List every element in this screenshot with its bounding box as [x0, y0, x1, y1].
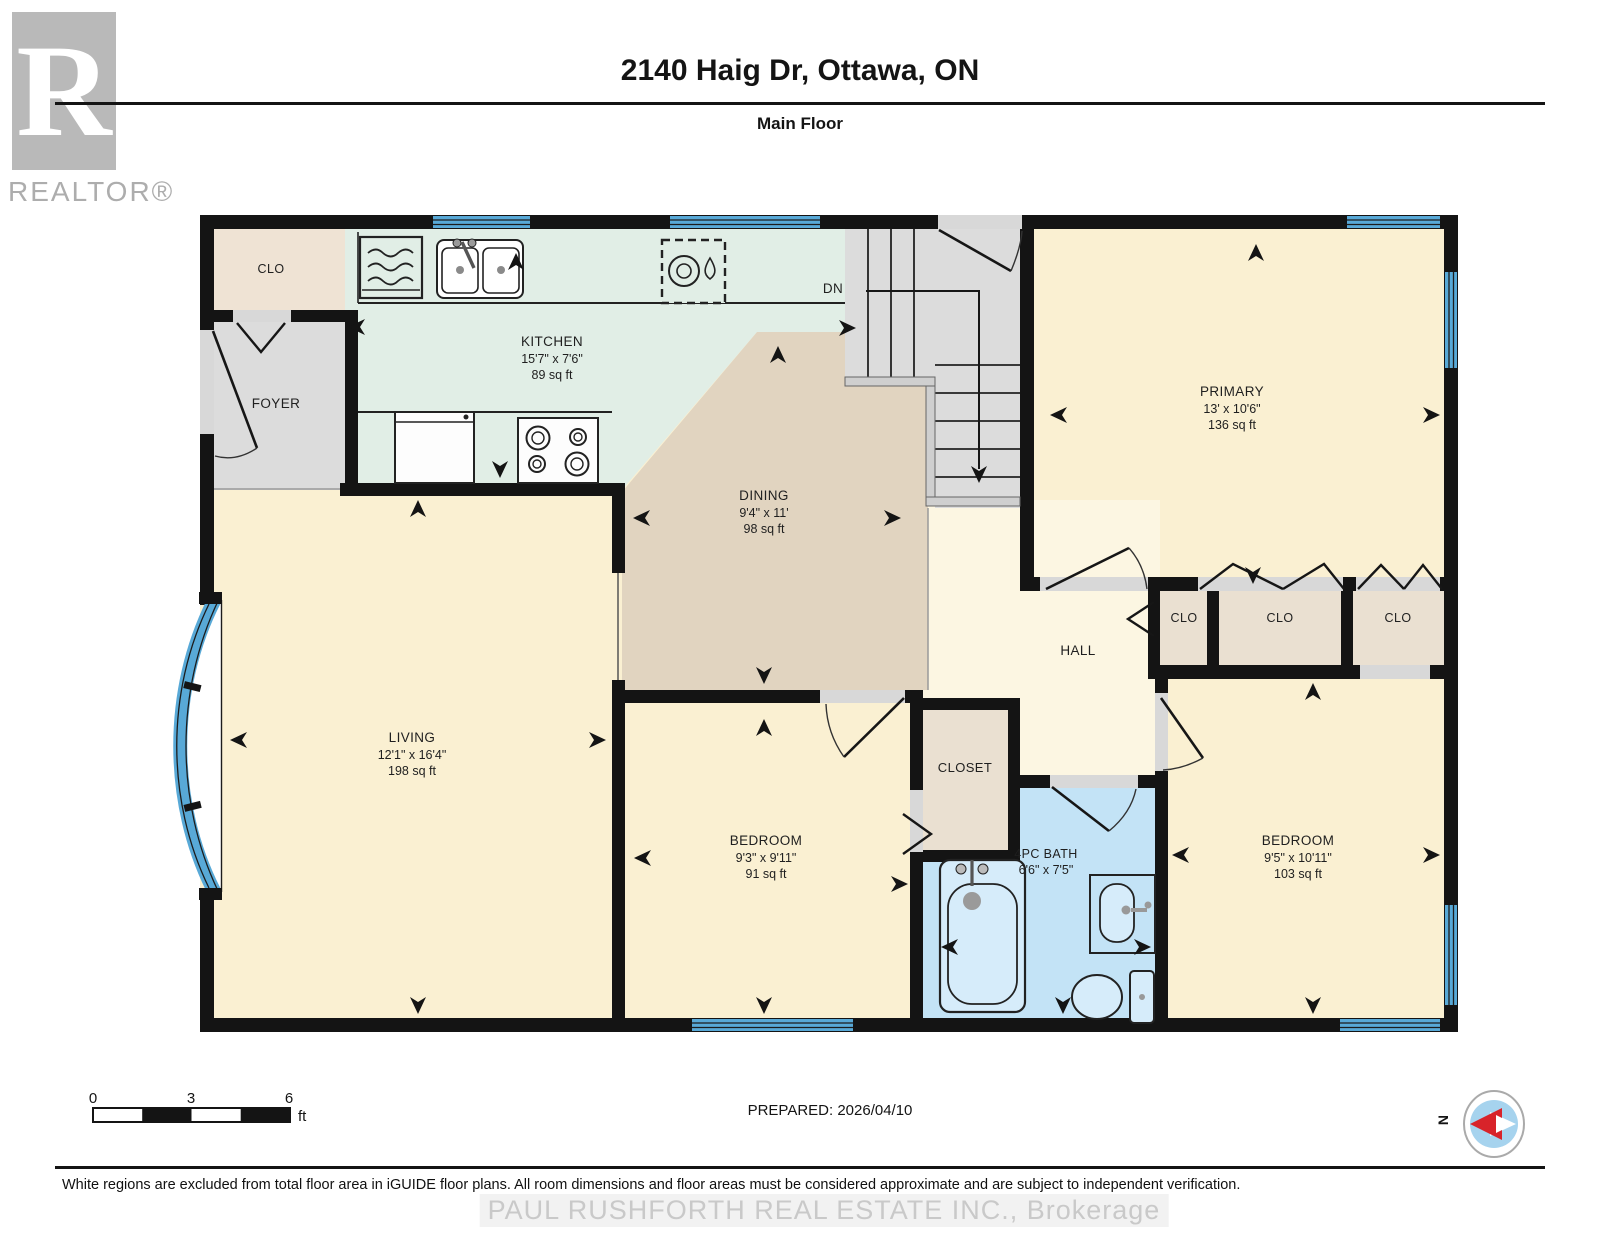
room-label-clo-1: CLO: [1171, 611, 1198, 625]
realtor-logo-icon: R: [12, 12, 116, 170]
room-label-clo-2: CLO: [1267, 611, 1294, 625]
kitchen-fixtures: [358, 232, 845, 483]
bathroom-fixtures: [940, 860, 1155, 1023]
compass-icon: [1464, 1091, 1524, 1157]
dimension-arrows: [230, 244, 1440, 1014]
scale-tick-3: 3: [187, 1090, 195, 1107]
room-label-hall: HALL: [1060, 643, 1095, 658]
realtor-logo-letter: R: [16, 17, 111, 164]
room-label-clo-entry: CLO: [258, 262, 285, 276]
brokerage-watermark: PAUL RUSHFORTH REAL ESTATE INC., Brokera…: [480, 1194, 1169, 1227]
room-label-dining: DINING 9'4" x 11' 98 sq ft: [739, 487, 789, 537]
room-label-kitchen: KITCHEN 15'7" x 7'6" 89 sq ft: [521, 333, 583, 383]
room-label-closet: CLOSET: [938, 760, 992, 775]
title-divider: [55, 102, 1545, 105]
open-passage-lines: [214, 489, 928, 690]
bathroom-sink-icon: [1090, 875, 1155, 953]
room-label-foyer: FOYER: [252, 396, 301, 411]
prepared-date: PREPARED: 2026/04/10: [748, 1102, 913, 1119]
scale-tick-0: 0: [89, 1090, 97, 1107]
stove-icon: [518, 418, 598, 483]
room-label-bath: 4PC BATH 6'6" x 7'5": [1014, 846, 1077, 879]
scale-bar: [93, 1108, 290, 1122]
stairs-dn-label: DN: [823, 281, 843, 296]
doors: [213, 230, 1203, 831]
microwave-icon: [360, 237, 422, 298]
fridge-icon: [395, 412, 474, 483]
dishwasher-icon: [662, 240, 725, 303]
floor-plan-page: R REALTOR® 2140 Haig Dr, Ottawa, ON Main…: [0, 0, 1600, 1243]
toilet-icon: [1072, 971, 1154, 1023]
kitchen-sink-icon: [437, 239, 523, 298]
stairs-down-arrow-icon: [971, 466, 987, 483]
bay-window: [177, 592, 222, 900]
realtor-logo-text: REALTOR®: [8, 176, 174, 208]
stairs: [845, 229, 1020, 506]
scale-tick-6: 6: [285, 1090, 293, 1107]
room-label-clo-3: CLO: [1385, 611, 1412, 625]
floor-plan-drawing: [0, 0, 1600, 1243]
scale-unit: ft: [298, 1108, 306, 1125]
floor-name: Main Floor: [0, 114, 1600, 134]
compass-north-label: N: [1435, 1115, 1451, 1125]
page-title: 2140 Haig Dr, Ottawa, ON: [0, 54, 1600, 88]
footer-divider: [55, 1166, 1545, 1169]
room-label-bedroom-mid: BEDROOM 9'3" x 9'11" 91 sq ft: [730, 832, 803, 882]
room-label-bedroom-right: BEDROOM 9'5" x 10'11" 103 sq ft: [1262, 832, 1335, 882]
windows: [433, 216, 1457, 1031]
bathtub-icon: [940, 860, 1025, 1012]
room-label-living: LIVING 12'1" x 16'4" 198 sq ft: [378, 729, 447, 779]
disclaimer-text: White regions are excluded from total fl…: [62, 1177, 1240, 1193]
room-label-primary: PRIMARY 13' x 10'6" 136 sq ft: [1200, 383, 1264, 433]
